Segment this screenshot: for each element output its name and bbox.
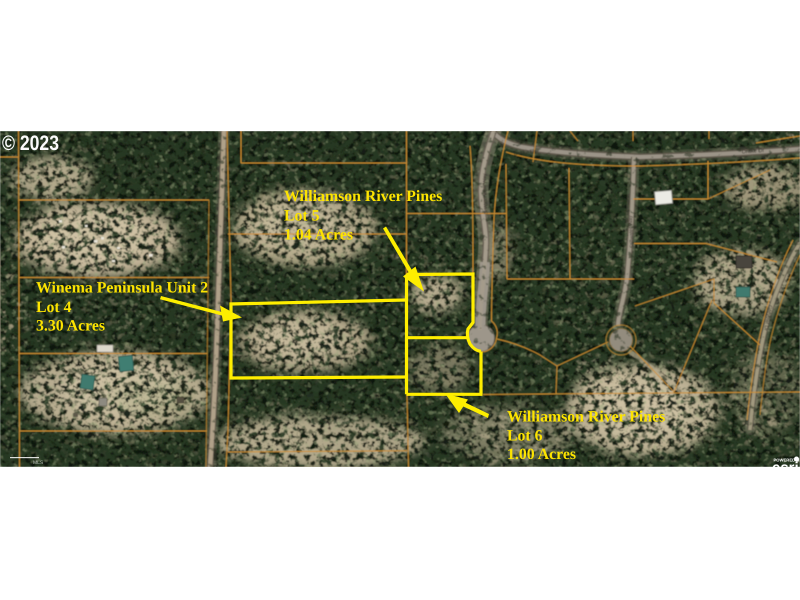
svg-text:Winema Peninsula Unit 2: Winema Peninsula Unit 2 bbox=[36, 280, 208, 297]
svg-text:Indian Dr: Indian Dr bbox=[212, 448, 219, 471]
svg-text:1.04 Acres: 1.04 Acres bbox=[284, 227, 353, 244]
svg-text:Williamson River Pines: Williamson River Pines bbox=[507, 409, 665, 426]
svg-text:esri: esri bbox=[772, 460, 799, 477]
svg-text:Indian Dr: Indian Dr bbox=[221, 220, 229, 243]
svg-text:Lot 6: Lot 6 bbox=[507, 428, 543, 445]
svg-text:3.30 Acres: 3.30 Acres bbox=[36, 318, 105, 335]
svg-text:Williamson River Pines: Williamson River Pines bbox=[284, 188, 442, 205]
svg-text:Lot 4: Lot 4 bbox=[36, 299, 72, 316]
svg-text:Lot 5: Lot 5 bbox=[284, 208, 320, 225]
svg-text:MLS: MLS bbox=[33, 460, 44, 466]
svg-text:1.00 Acres: 1.00 Acres bbox=[507, 446, 576, 463]
svg-text:© 2023: © 2023 bbox=[2, 132, 59, 155]
